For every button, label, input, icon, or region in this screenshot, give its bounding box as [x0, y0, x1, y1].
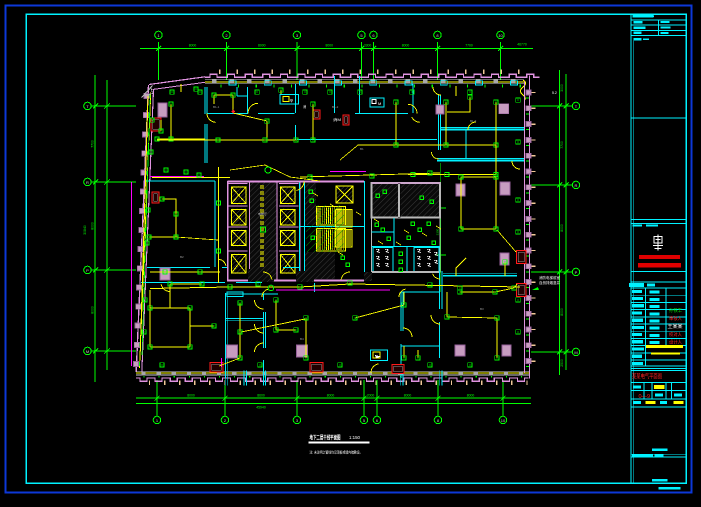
svg-text:校对人: 校对人 [669, 331, 682, 338]
svg-text:B1-2: B1-2 [332, 105, 339, 109]
svg-text:消: 消 [303, 104, 306, 109]
svg-text:孙铁丰: 孙铁丰 [669, 307, 682, 314]
svg-text:P: P [575, 270, 578, 275]
svg-text:2500: 2500 [560, 359, 564, 367]
svg-text:M: M [86, 349, 89, 354]
svg-text:8000: 8000 [91, 306, 95, 314]
svg-text:45940: 45940 [256, 406, 266, 410]
svg-text:B1-1: B1-1 [213, 105, 220, 109]
svg-text:7700: 7700 [91, 140, 95, 148]
svg-text:地下二层干线平面图: 地下二层干线平面图 [310, 433, 341, 441]
svg-text:10: 10 [501, 418, 506, 423]
svg-text:8000: 8000 [560, 224, 564, 232]
svg-text:8000: 8000 [187, 394, 195, 398]
svg-text:王某某: 王某某 [668, 323, 683, 330]
svg-text:3000: 3000 [560, 84, 564, 92]
svg-text:1:150: 1:150 [349, 435, 361, 440]
svg-text:8000: 8000 [560, 308, 564, 316]
svg-text:8000: 8000 [258, 44, 266, 48]
svg-text:消防电梯前室: 消防电梯前室 [539, 275, 560, 280]
svg-text:46770: 46770 [517, 43, 527, 47]
svg-text:8000: 8000 [189, 44, 197, 48]
svg-text:3300: 3300 [364, 44, 372, 48]
svg-text:8000: 8000 [467, 394, 475, 398]
svg-text:0—9: 0—9 [639, 394, 651, 400]
svg-text:3300: 3300 [436, 228, 440, 235]
svg-text:8000: 8000 [404, 394, 412, 398]
svg-text:8000: 8000 [402, 44, 410, 48]
svg-text:电梯厅: 电梯厅 [258, 211, 267, 216]
svg-text:φ: φ [290, 98, 293, 103]
svg-text:B2: B2 [180, 255, 184, 259]
svg-text:8000: 8000 [91, 222, 95, 230]
svg-text:8000: 8000 [325, 44, 333, 48]
svg-text:10: 10 [498, 33, 503, 38]
svg-text:R: R [86, 180, 89, 185]
svg-text:B4: B4 [300, 337, 304, 341]
svg-text:审核人: 审核人 [669, 315, 682, 322]
svg-text:8000: 8000 [327, 394, 335, 398]
svg-text:注: 未注明之管线均沿顶板或墙内暗敷设。: 注: 未注明之管线均沿顶板或墙内暗敷设。 [310, 450, 363, 455]
svg-text:M: M [574, 350, 577, 355]
svg-text:5.2: 5.2 [552, 91, 557, 95]
svg-text:某某电气平面图: 某某电气平面图 [632, 373, 662, 381]
svg-text:8600: 8600 [257, 394, 265, 398]
svg-text:自然排烟竖井: 自然排烟竖井 [539, 280, 560, 285]
svg-text:B1-3: B1-3 [470, 119, 477, 123]
svg-text:P: P [86, 268, 89, 273]
svg-text:7700: 7700 [560, 141, 564, 149]
svg-text:设计人: 设计人 [669, 339, 682, 346]
svg-text:M: M [378, 101, 381, 106]
svg-text:R: R [575, 183, 578, 188]
svg-text:2000: 2000 [367, 394, 375, 398]
svg-text:消M: 消M [333, 117, 341, 122]
svg-text:7700: 7700 [465, 44, 473, 48]
svg-text:30840: 30840 [83, 225, 87, 235]
svg-text:B3: B3 [480, 307, 484, 311]
svg-text:B1: B1 [360, 147, 364, 151]
